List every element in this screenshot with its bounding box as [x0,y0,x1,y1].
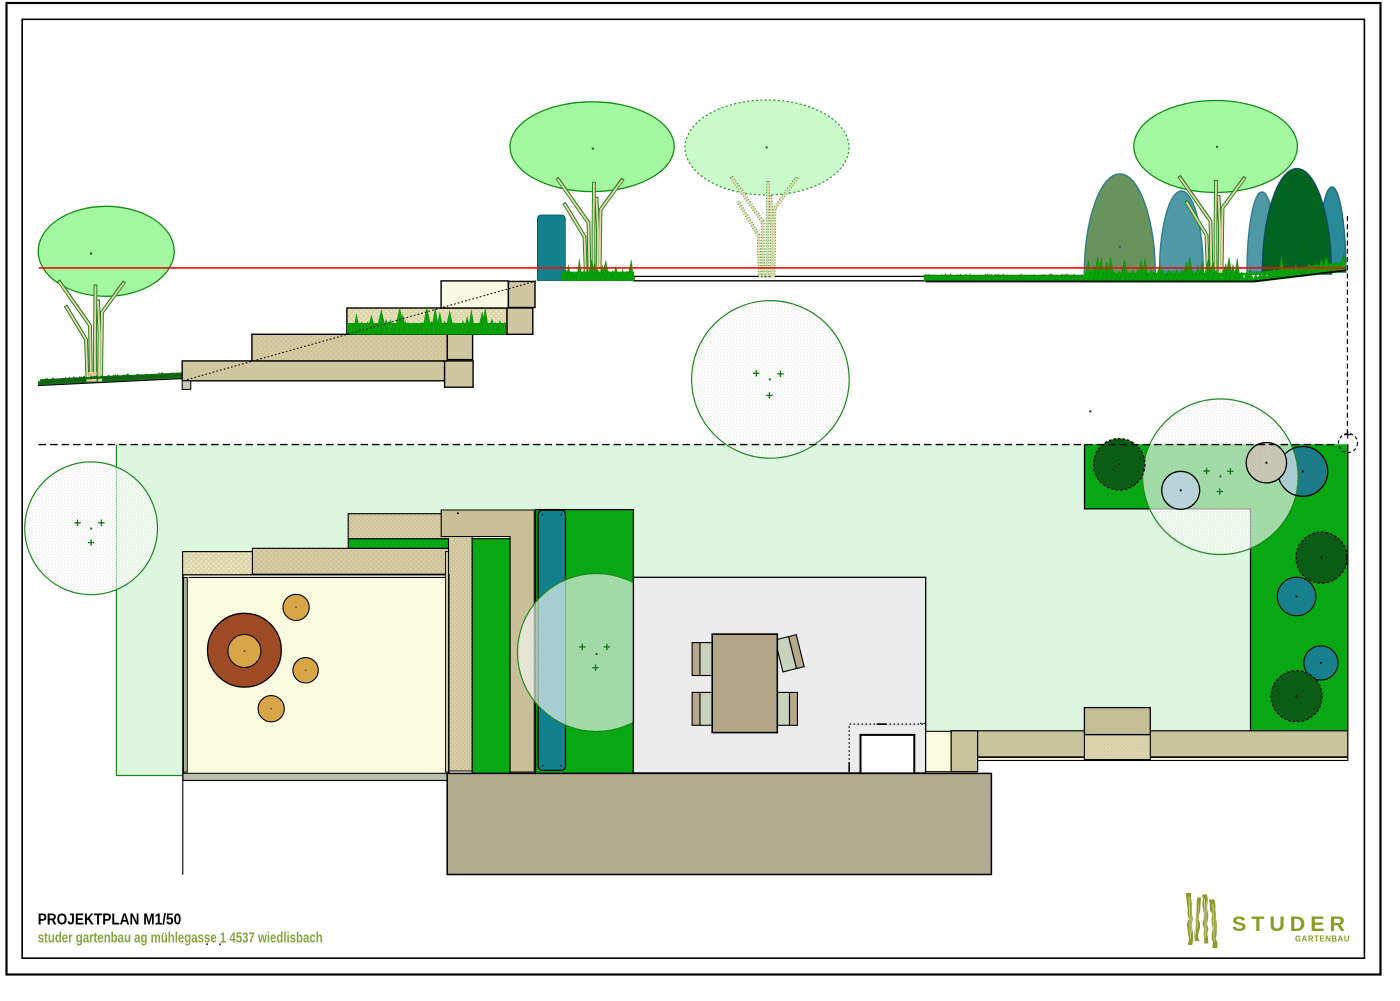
svg-text:GARTENBAU: GARTENBAU [1295,935,1350,944]
svg-text:studer gartenbau ag mühlegasse: studer gartenbau ag mühlegasse 1 4537 wi… [38,929,323,946]
svg-text:PROJEKTPLAN M1/50: PROJEKTPLAN M1/50 [38,912,182,929]
svg-text:STUDER: STUDER [1232,912,1349,936]
